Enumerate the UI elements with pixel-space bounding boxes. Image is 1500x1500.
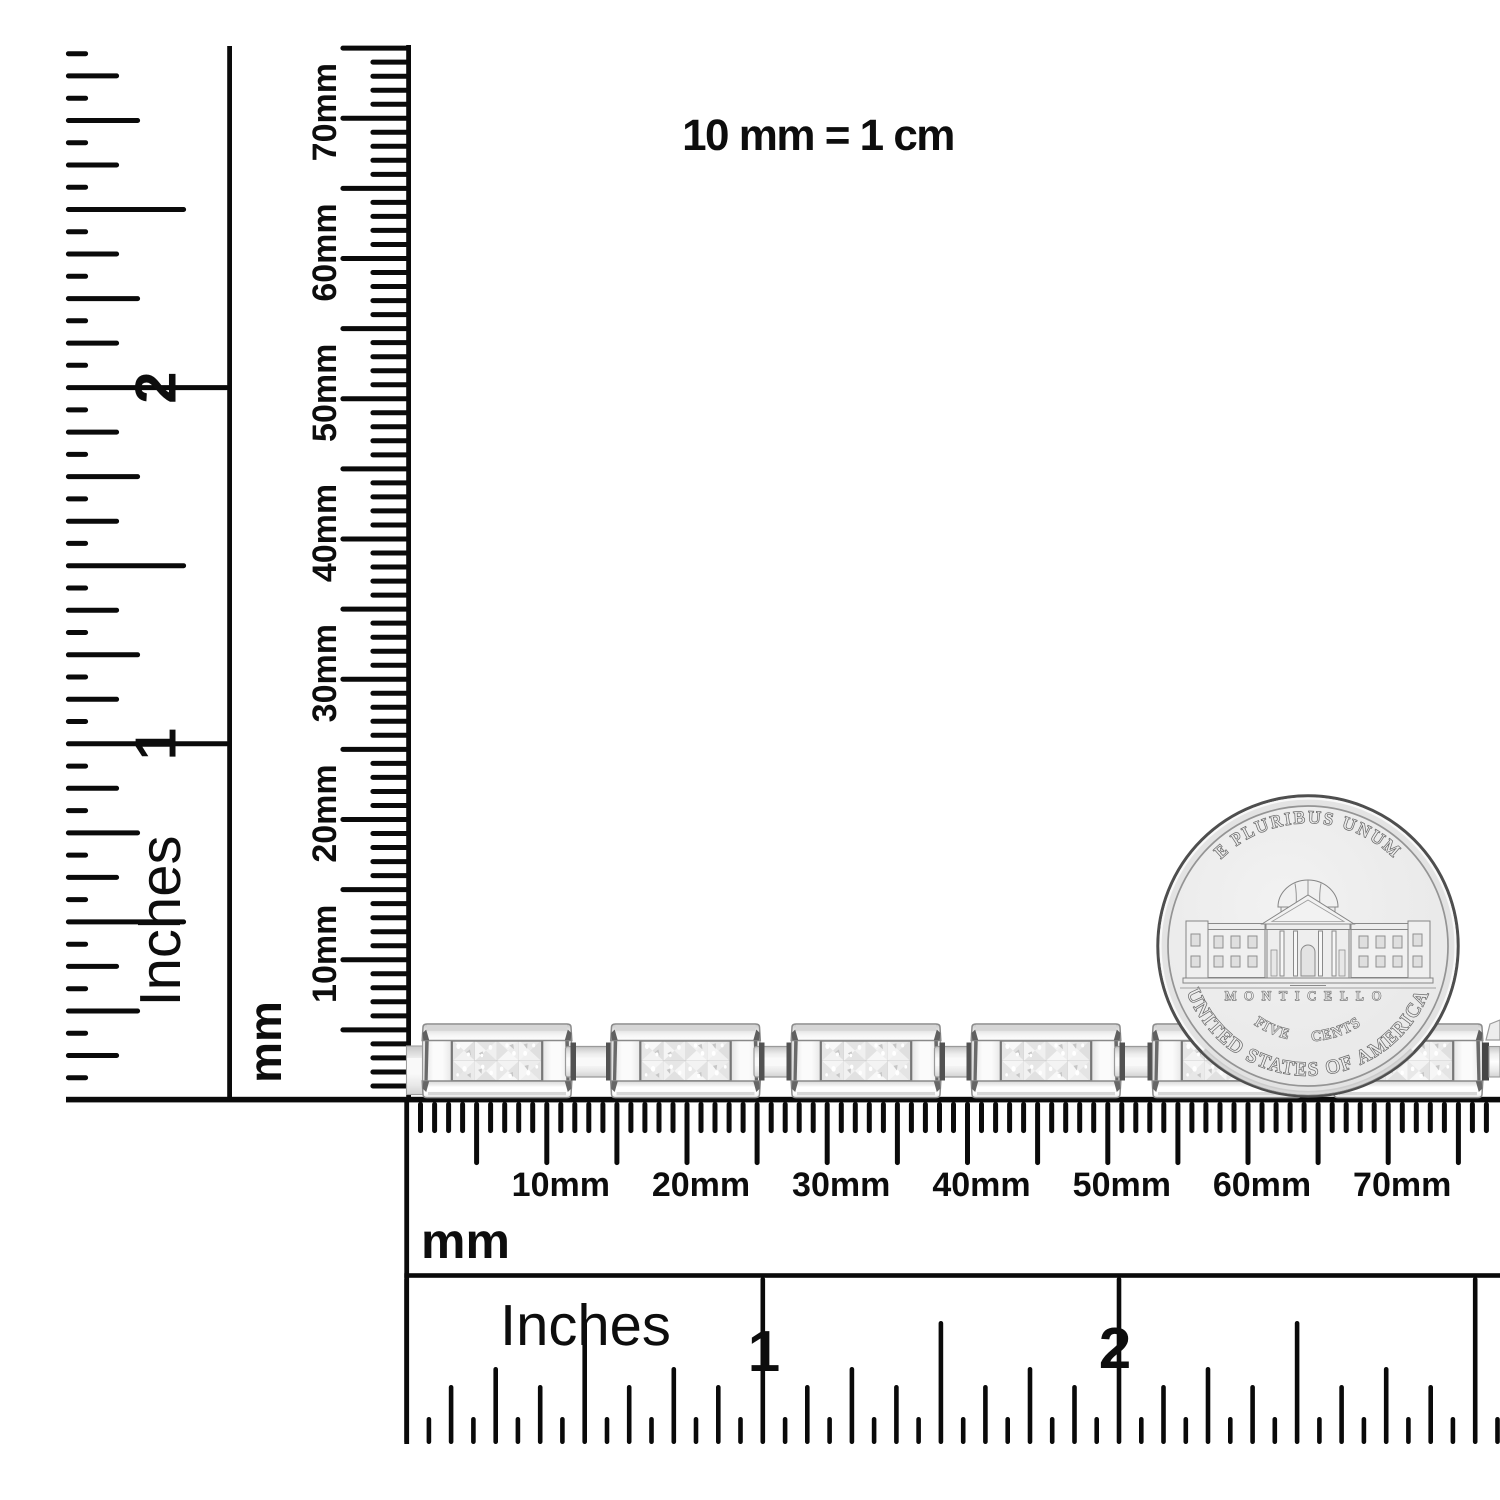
svg-text:60mm: 60mm: [1213, 1166, 1311, 1204]
svg-text:50mm: 50mm: [306, 344, 344, 442]
svg-text:40mm: 40mm: [306, 484, 344, 582]
svg-text:mm: mm: [239, 1001, 291, 1083]
svg-text:70mm: 70mm: [306, 63, 344, 161]
svg-text:1: 1: [748, 1319, 780, 1384]
svg-text:1: 1: [124, 728, 189, 760]
svg-text:20mm: 20mm: [306, 764, 344, 862]
svg-text:20mm: 20mm: [652, 1166, 750, 1204]
svg-text:70mm: 70mm: [1353, 1166, 1451, 1204]
svg-text:MONTICELLO: MONTICELLO: [1225, 988, 1390, 1003]
svg-text:10mm: 10mm: [306, 905, 344, 1003]
svg-text:Inches: Inches: [128, 836, 193, 1007]
svg-text:10 mm = 1 cm: 10 mm = 1 cm: [682, 111, 954, 160]
svg-text:30mm: 30mm: [792, 1166, 890, 1204]
svg-text:60mm: 60mm: [306, 203, 344, 301]
svg-text:2: 2: [1099, 1316, 1131, 1381]
svg-text:40mm: 40mm: [932, 1166, 1030, 1204]
svg-text:10mm: 10mm: [512, 1166, 610, 1204]
svg-text:50mm: 50mm: [1073, 1166, 1171, 1204]
svg-text:mm: mm: [421, 1213, 510, 1269]
svg-text:30mm: 30mm: [306, 624, 344, 722]
svg-text:Inches: Inches: [500, 1293, 671, 1358]
svg-text:2: 2: [124, 371, 189, 403]
